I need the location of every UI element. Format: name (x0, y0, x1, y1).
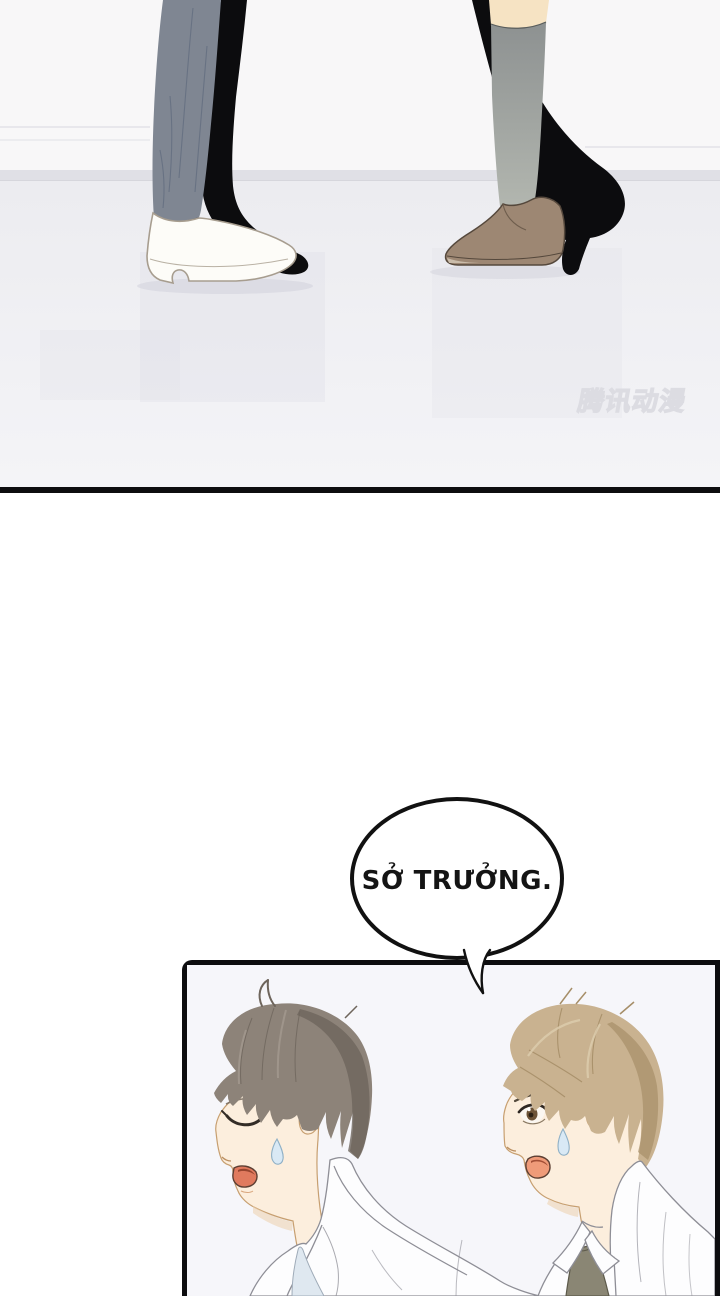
tencent-comics-watermark: 腾讯动漫 (575, 383, 718, 421)
pupil (529, 1113, 534, 1118)
panel-bottom-office-scene (182, 960, 720, 1296)
open-mouth-right (526, 1156, 550, 1178)
panel-top-feet-scene: 腾讯动漫 (0, 0, 720, 493)
comic-page: 腾讯动漫 (0, 0, 720, 1296)
eye-highlight (527, 1108, 530, 1111)
shoe-shadow (430, 265, 580, 279)
characters-art (187, 965, 715, 1296)
floor-reflection (40, 330, 180, 400)
speech-bubble-text: SỞ TRƯỞNG. (362, 866, 553, 896)
speech-bubble: SỞ TRƯỞNG. (350, 797, 564, 960)
speech-bubble-tail (454, 948, 500, 996)
